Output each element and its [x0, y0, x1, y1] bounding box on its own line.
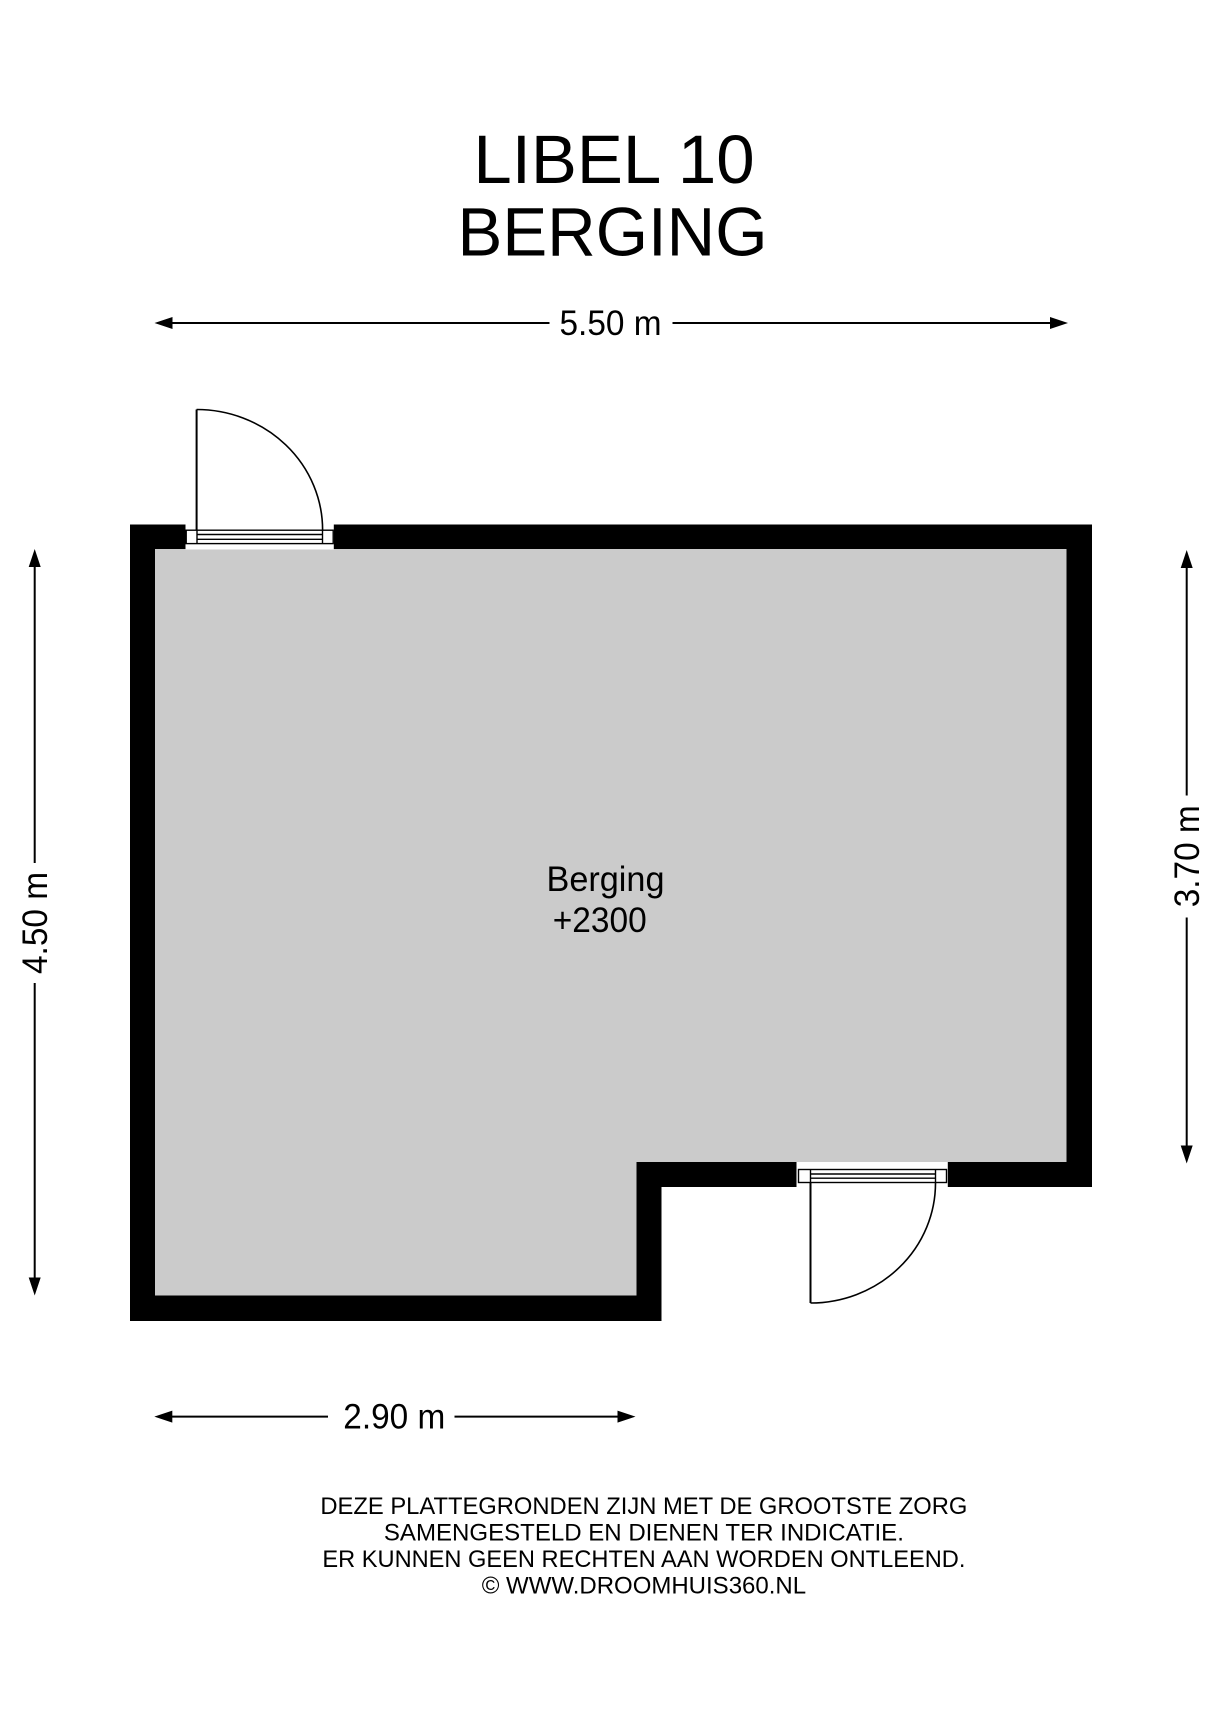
svg-text:ER KUNNEN GEEN RECHTEN AAN WOR: ER KUNNEN GEEN RECHTEN AAN WORDEN ONTLEE…	[322, 1546, 965, 1573]
svg-text:2.90 m: 2.90 m	[343, 1398, 445, 1437]
svg-text:BERGING: BERGING	[458, 193, 768, 270]
svg-text:Berging: Berging	[547, 860, 665, 899]
svg-text:SAMENGESTELD EN DIENEN TER IND: SAMENGESTELD EN DIENEN TER INDICATIE.	[384, 1520, 904, 1547]
svg-text:3.70 m: 3.70 m	[1168, 805, 1207, 907]
svg-text:LIBEL 10: LIBEL 10	[473, 121, 754, 198]
svg-text:4.50 m: 4.50 m	[16, 872, 55, 974]
svg-text:DEZE PLATTEGRONDEN ZIJN MET DE: DEZE PLATTEGRONDEN ZIJN MET DE GROOTSTE …	[320, 1493, 967, 1520]
svg-text:5.50 m: 5.50 m	[560, 304, 662, 343]
svg-text:+2300: +2300	[553, 901, 647, 940]
svg-text:© WWW.DROOMHUIS360.NL: © WWW.DROOMHUIS360.NL	[482, 1573, 806, 1600]
